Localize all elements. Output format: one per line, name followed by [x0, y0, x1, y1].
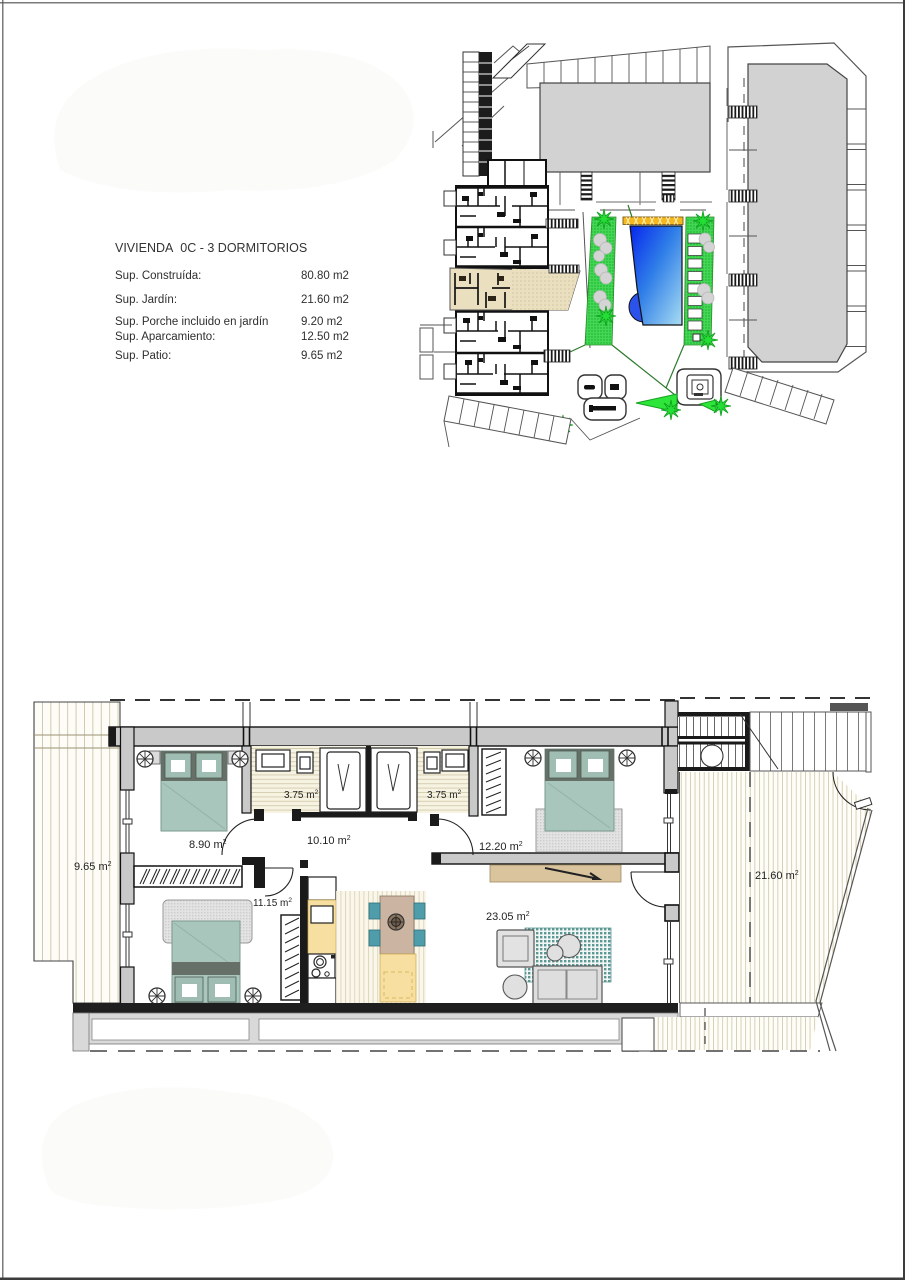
svg-text:11.15 m2: 11.15 m2: [253, 897, 292, 909]
svg-text:3.75 m2: 3.75 m2: [427, 789, 462, 801]
svg-text:23.05 m2: 23.05 m2: [486, 911, 530, 923]
svg-text:21.60 m2: 21.60 m2: [755, 870, 799, 882]
svg-text:12.20 m2: 12.20 m2: [479, 841, 523, 853]
svg-text:8.90 m2: 8.90 m2: [189, 839, 227, 851]
svg-text:9.65 m2: 9.65 m2: [74, 861, 112, 873]
svg-text:10.10 m2: 10.10 m2: [307, 835, 351, 847]
svg-text:3.75 m2: 3.75 m2: [284, 789, 319, 801]
